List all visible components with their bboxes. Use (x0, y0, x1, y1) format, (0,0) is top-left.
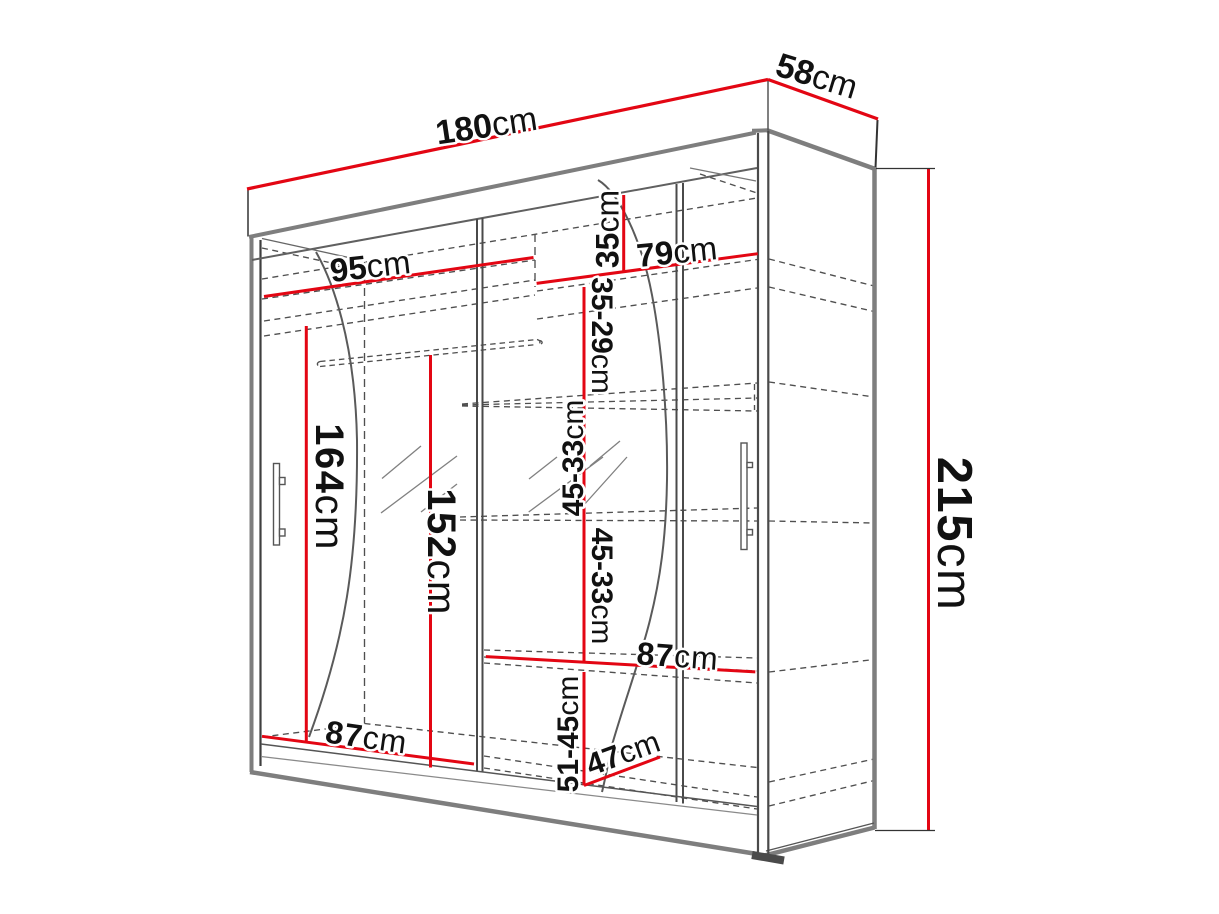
svg-text:51-45cm: 51-45cm (552, 676, 585, 793)
svg-text:35-29cm: 35-29cm (585, 277, 618, 394)
svg-text:45-33cm: 45-33cm (557, 400, 590, 517)
svg-text:87cm: 87cm (635, 635, 720, 677)
svg-text:215cm: 215cm (927, 457, 981, 612)
svg-text:35cm: 35cm (590, 190, 626, 268)
svg-text:45-33cm: 45-33cm (585, 528, 618, 645)
svg-text:164cm: 164cm (307, 423, 351, 551)
svg-text:152cm: 152cm (419, 488, 463, 616)
